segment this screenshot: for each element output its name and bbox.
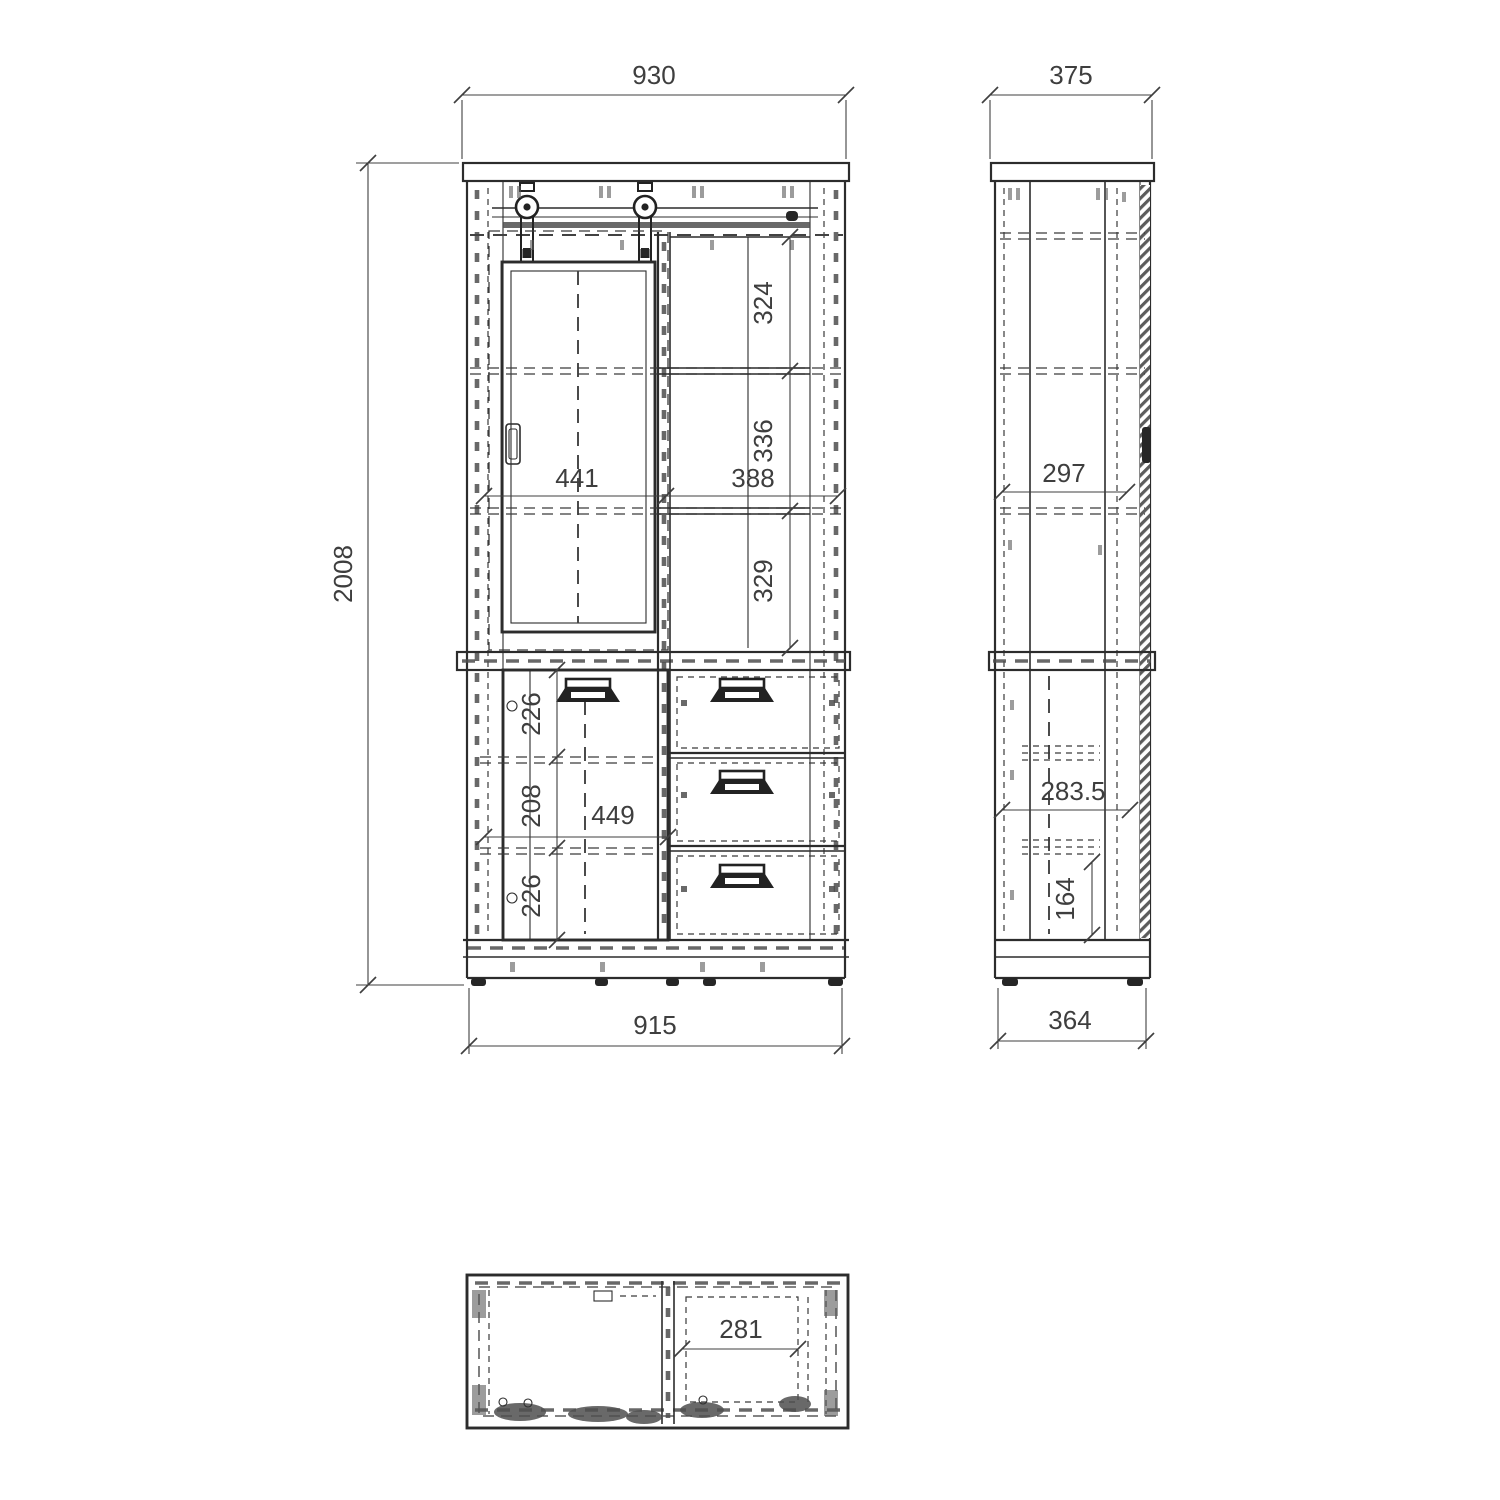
dim-upper-door-width: 441 [555,463,598,493]
drawer-1-handle [710,679,774,702]
dim-overall-height: 2008 [328,545,358,603]
front-dimensions: 930 2008 915 441 388 [328,60,854,1054]
dim-depth-bottom: 364 [1048,1005,1091,1035]
back-panel-hatch [1140,185,1150,938]
dim-lower-top-height: 226 [516,692,546,735]
dim-inner-depth-upper: 297 [1042,458,1085,488]
dim-inner-depth-lower: 283.5 [1040,776,1105,806]
top-hardware-marks [472,1290,838,1424]
front-carcass [457,163,850,986]
lower-door [480,670,668,940]
dim-lower-door-width: 449 [591,800,634,830]
side-feet [1002,978,1143,986]
dim-depth-top: 375 [1049,60,1092,90]
side-view: 375 297 283.5 164 364 [982,60,1160,1049]
dim-upper-shelf-top-height: 324 [748,281,778,324]
cabinet-technical-drawing: 930 2008 915 441 388 [0,0,1500,1500]
dim-drawer-inner-height: 164 [1050,877,1080,920]
top-carcass [467,1275,848,1428]
upper-shelf-compartment [470,232,843,940]
lower-door-handle [556,679,620,702]
top-view: 281 [467,1275,848,1428]
drawer-stack [668,677,845,934]
dim-lower-middle-height: 208 [516,784,546,827]
dim-overall-width-bottom: 915 [633,1010,676,1040]
side-door-handle [1142,427,1151,463]
side-dimensions: 375 297 283.5 164 364 [982,60,1160,1049]
dim-upper-shelf-bottom-height: 329 [748,559,778,602]
dim-upper-shelf-middle-height: 336 [748,419,778,462]
dim-upper-shelf-width: 388 [731,463,774,493]
technical-drawing-page: 930 2008 915 441 388 [0,0,1500,1500]
front-view: 930 2008 915 441 388 [328,60,854,1054]
side-carcass [989,163,1155,986]
upper-sliding-door [489,231,668,650]
dim-overall-width-top: 930 [632,60,675,90]
upper-door-handle [506,424,520,464]
top-dimensions: 281 [674,1314,806,1357]
dim-drawer-bay-width: 281 [719,1314,762,1344]
dim-lower-bottom-height: 226 [516,874,546,917]
front-feet [471,978,843,986]
sliding-door-rail [470,183,843,263]
drawer-3-handle [710,865,774,888]
drawer-2-handle [710,771,774,794]
